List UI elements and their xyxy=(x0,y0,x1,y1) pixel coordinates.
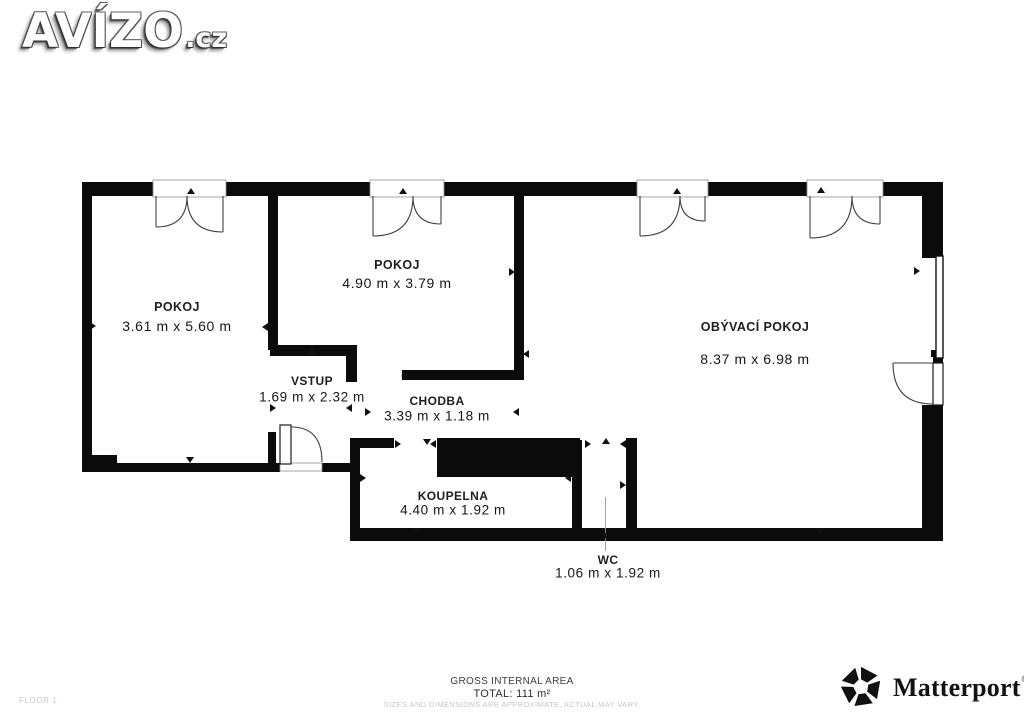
wall xyxy=(705,182,810,196)
wall xyxy=(880,182,943,196)
wall xyxy=(441,182,640,196)
door-frame xyxy=(807,180,883,197)
measurement-tick xyxy=(186,457,194,463)
wall xyxy=(514,196,524,380)
floor-plan xyxy=(0,0,1024,724)
door-swing-arc xyxy=(373,196,413,236)
measurement-tick xyxy=(346,404,352,412)
measurement-tick xyxy=(430,440,436,448)
wall xyxy=(82,455,117,472)
door-frame xyxy=(637,180,708,197)
door-swing-arc xyxy=(680,196,705,221)
wall xyxy=(322,463,352,472)
measurement-tick xyxy=(585,440,591,448)
window xyxy=(936,256,943,358)
measurement-tick xyxy=(262,323,268,331)
wall xyxy=(346,345,357,382)
measurement-tick xyxy=(360,474,366,482)
measurement-tick xyxy=(423,439,431,445)
door-swing-arc xyxy=(852,196,880,224)
wall xyxy=(268,463,280,472)
balcony-door-leaf xyxy=(933,363,943,405)
wall xyxy=(223,182,373,196)
wall xyxy=(117,463,268,472)
measurement-tick xyxy=(395,440,401,448)
wall xyxy=(437,438,580,477)
door-swing-arc xyxy=(187,196,223,232)
wall xyxy=(402,370,524,380)
door-swing-arc xyxy=(640,196,680,236)
matterport-pinwheel-icon xyxy=(838,664,884,710)
measurement-tick xyxy=(620,440,626,448)
door-frame xyxy=(370,180,444,197)
wall xyxy=(350,438,360,541)
door-swing-arc xyxy=(893,363,933,404)
measurement-tick xyxy=(602,438,610,444)
door-swing-arc xyxy=(810,196,852,238)
measurement-tick xyxy=(620,481,626,489)
measurement-tick xyxy=(270,404,276,412)
wall xyxy=(82,182,156,196)
measurement-tick xyxy=(90,322,96,330)
floor-number-label: FLOOR 1 xyxy=(19,696,57,705)
wall xyxy=(360,438,394,448)
door-swing-arc xyxy=(156,196,187,227)
floorplan-page: AVÍZO .cz POKOJ3.61 m x 5.60 mPOKOJ4.90 … xyxy=(0,0,1024,724)
wall xyxy=(626,438,637,541)
matterport-logo: Matterport® xyxy=(838,664,1024,710)
door-frame xyxy=(153,180,226,197)
door-swing-arc xyxy=(413,196,441,224)
wall xyxy=(922,405,943,541)
wall xyxy=(268,196,278,350)
matterport-wordmark: Matterport xyxy=(893,673,1021,702)
wall xyxy=(268,432,276,463)
wall xyxy=(350,528,943,541)
wall xyxy=(922,196,943,258)
measurement-tick xyxy=(513,408,519,416)
wall xyxy=(572,440,582,541)
measurement-tick xyxy=(914,267,920,275)
entry-door-swing-arc xyxy=(291,427,322,462)
measurement-tick xyxy=(365,408,371,416)
wall xyxy=(82,196,92,472)
entry-door-leaf xyxy=(280,425,291,464)
